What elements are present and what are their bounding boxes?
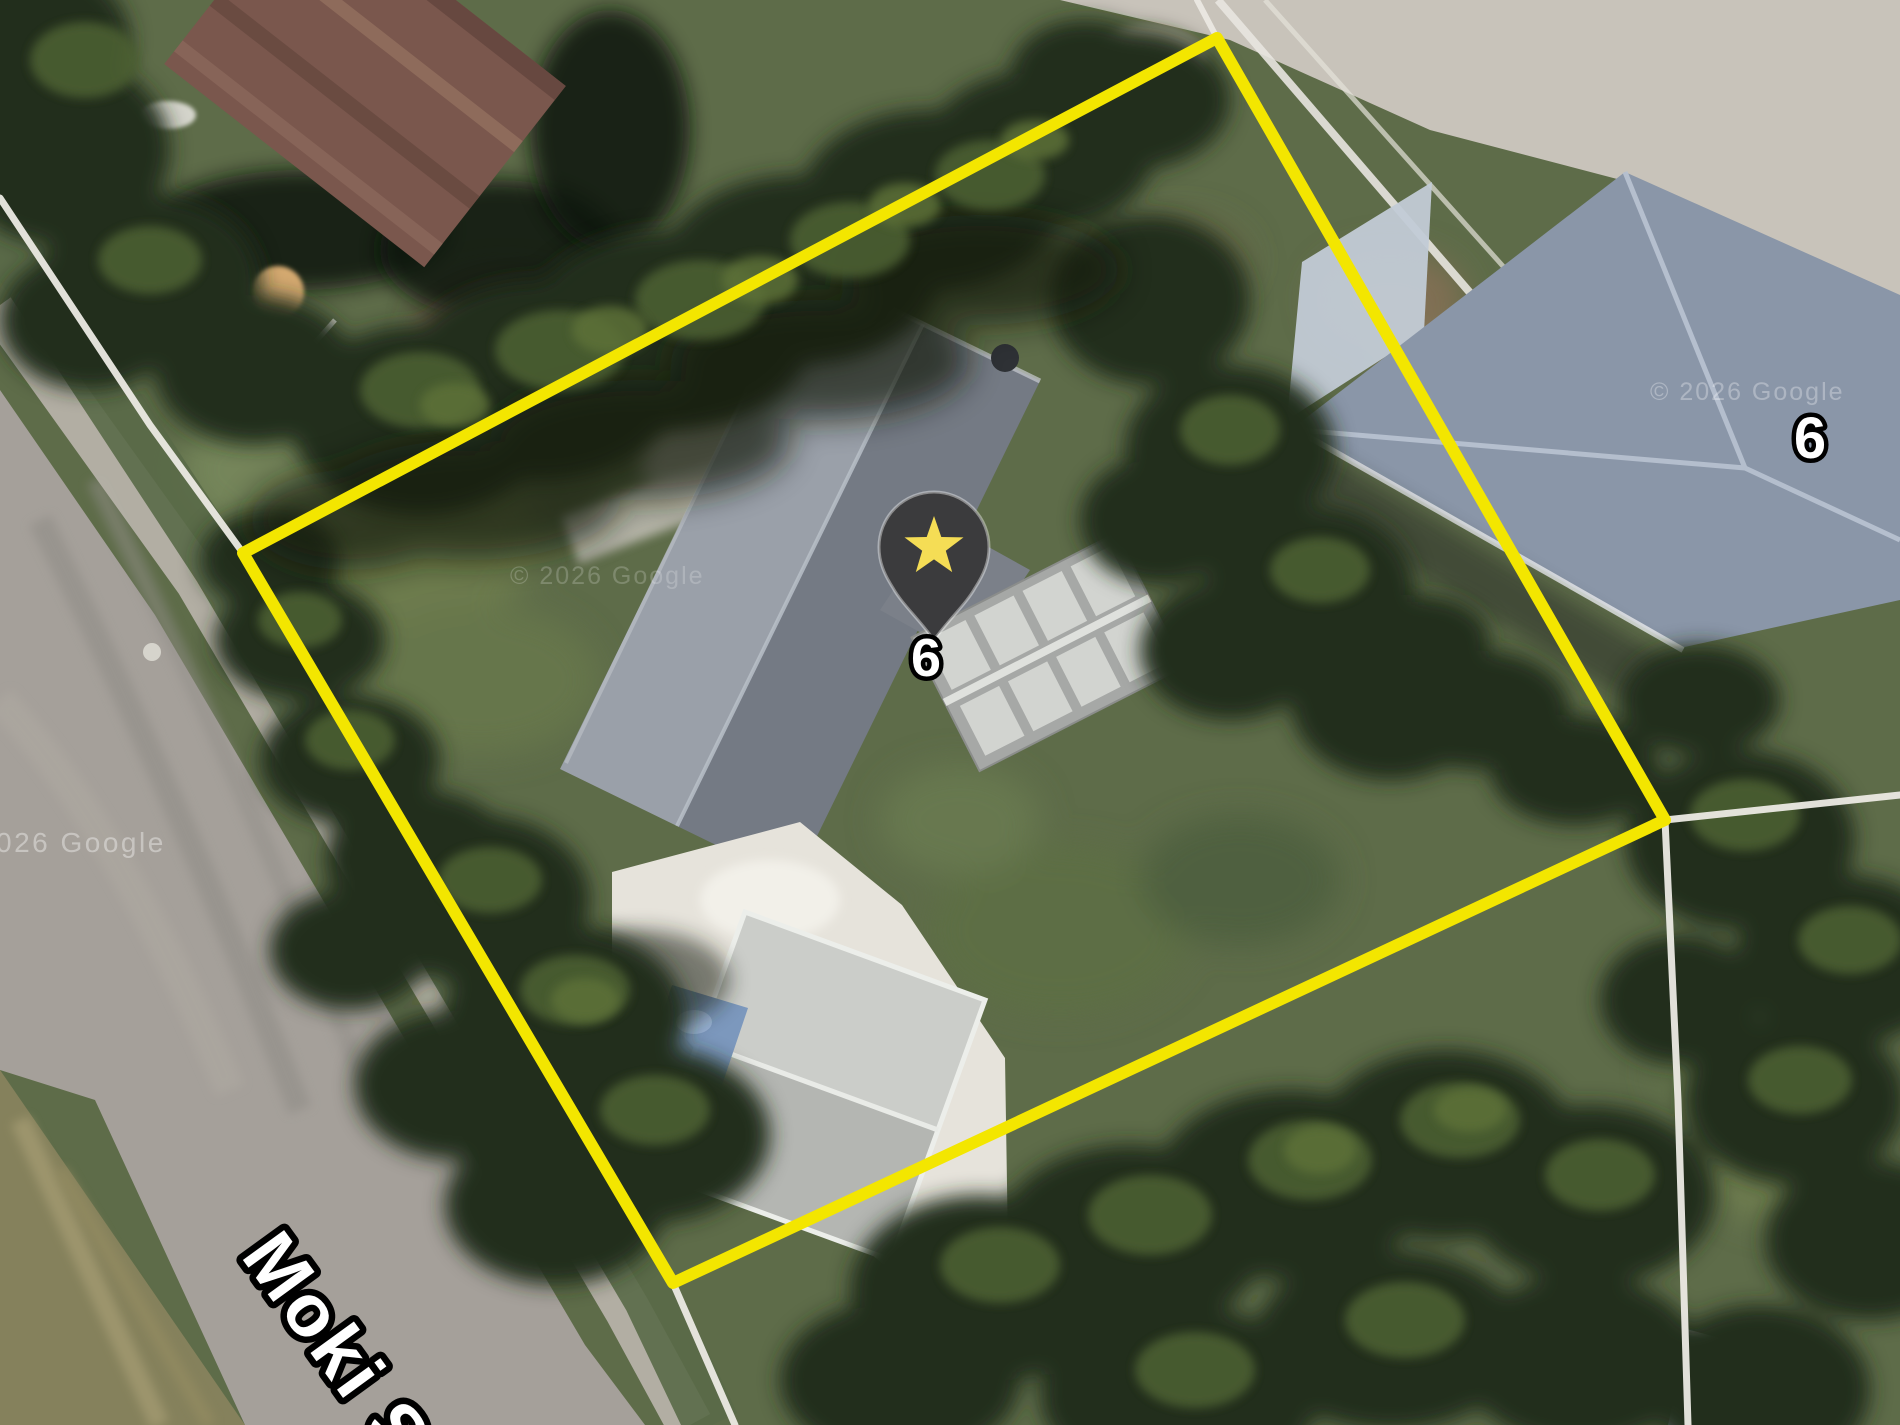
- chimney: [991, 344, 1019, 372]
- neighbor-address-label: 6: [1794, 406, 1826, 471]
- map-canvas[interactable]: 026 Google © 2026 Google © 2026 Google M…: [0, 0, 1900, 1425]
- marker-address-label: 6: [911, 628, 941, 688]
- google-watermark-right: © 2026 Google: [1650, 378, 1845, 406]
- satellite-imagery: 026 Google © 2026 Google © 2026 Google M…: [0, 0, 1900, 1425]
- google-watermark-center: © 2026 Google: [510, 562, 705, 590]
- google-watermark-left: 026 Google: [0, 827, 166, 858]
